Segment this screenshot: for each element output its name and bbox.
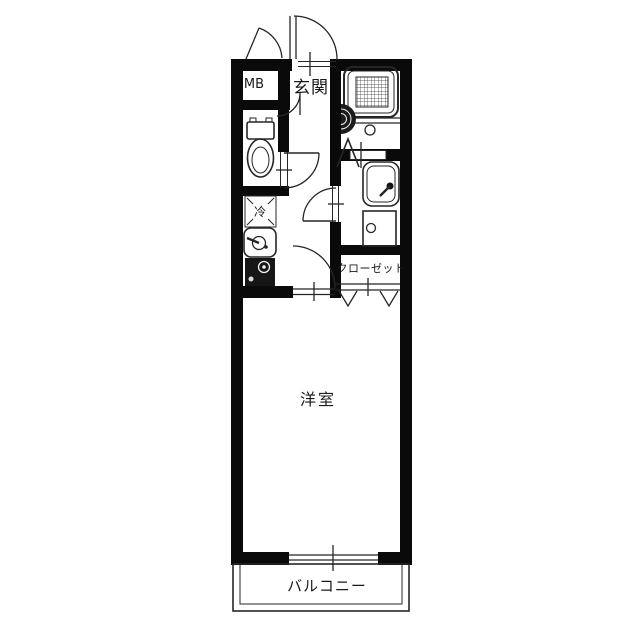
- bathtub-hatch: [356, 77, 388, 107]
- sliding-window: [289, 545, 378, 571]
- floorplan-drawing: MB 玄関 冷 クローゼット 洋室 バルコニー: [0, 0, 640, 640]
- kitchen-sink: [244, 228, 276, 257]
- washing-machine-space: [363, 211, 396, 246]
- entrance-label: 玄関: [293, 78, 329, 98]
- meter-box-door-swing: [246, 28, 282, 59]
- meter-box-label: MB: [244, 77, 264, 92]
- stove: [245, 258, 275, 286]
- entrance-door-swing: [290, 16, 337, 76]
- washroom-door-swing: [303, 186, 344, 222]
- floorplan: MB 玄関 冷 クローゼット 洋室 バルコニー: [0, 0, 640, 640]
- balcony-label: バルコニー: [287, 577, 367, 595]
- closet-bifold-doors: [335, 278, 400, 306]
- closet-label: クローゼット: [337, 262, 406, 275]
- shower-unit: [341, 104, 356, 134]
- refrigerator-label: 冷: [254, 205, 266, 219]
- western-room-label: 洋室: [300, 390, 336, 409]
- toilet: [247, 118, 274, 177]
- outer-walls: [231, 59, 412, 565]
- room-door-swing: [293, 246, 335, 301]
- bath-drain: [365, 125, 375, 135]
- washbasin: [363, 162, 399, 206]
- toilet-door-swing: [276, 152, 319, 188]
